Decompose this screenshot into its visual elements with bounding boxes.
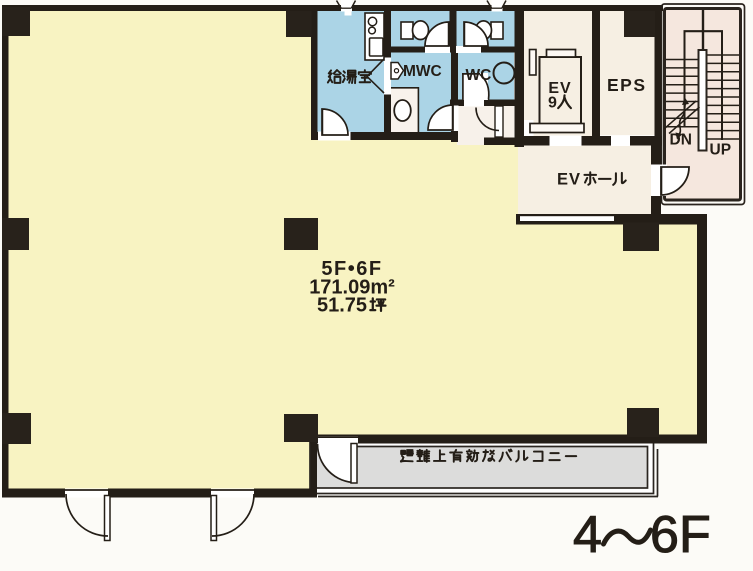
svg-text:DN: DN bbox=[670, 132, 692, 149]
svg-text:UP: UP bbox=[710, 142, 732, 159]
svg-text:51.75: 51.75 bbox=[317, 295, 367, 317]
svg-text:9: 9 bbox=[548, 95, 557, 112]
svg-text:F: F bbox=[679, 506, 711, 564]
svg-text:WC: WC bbox=[466, 67, 492, 84]
svg-text:EV: EV bbox=[557, 171, 581, 189]
svg-text:EPS: EPS bbox=[607, 75, 647, 95]
svg-text:MWC: MWC bbox=[403, 63, 442, 80]
svg-text:4: 4 bbox=[573, 506, 602, 564]
svg-text:6: 6 bbox=[650, 506, 679, 564]
